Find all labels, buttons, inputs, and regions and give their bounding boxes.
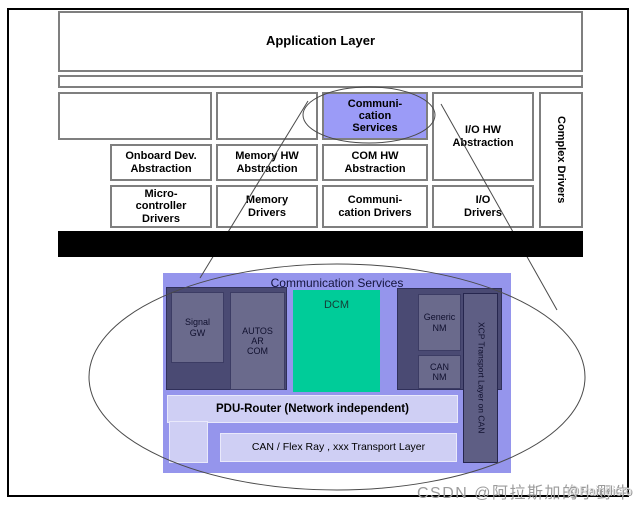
memory-drivers-label: Memory Drivers xyxy=(246,194,288,219)
memory-drivers-box: Memory Drivers xyxy=(216,185,318,228)
rte-bar xyxy=(58,75,583,88)
generic-nm-box: Generic NM xyxy=(418,294,461,351)
communication-services-highlight-box: Communi- cation Services xyxy=(322,92,428,140)
onboard-device-abstraction-label: Onboard Dev. Abstraction xyxy=(125,150,196,175)
xcp-transport-layer-box: XCP Transport Layer on CAN xyxy=(463,293,498,463)
com-hw-abstraction-label: COM HW Abstraction xyxy=(344,150,405,175)
complex-drivers-label: Complex Drivers xyxy=(555,116,567,203)
communication-drivers-label: Communi- cation Drivers xyxy=(338,194,411,219)
autosar-architecture-figure: Application Layer Communi- cation Servic… xyxy=(0,0,641,508)
pdu-router-label: PDU-Router (Network independent) xyxy=(216,403,409,416)
microcontroller-drivers-box: Micro- controller Drivers xyxy=(110,185,212,228)
can-nm-label: CAN NM xyxy=(430,362,449,382)
io-drivers-label: I/O Drivers xyxy=(464,194,502,219)
microcontroller-drivers-label: Micro- controller Drivers xyxy=(136,188,187,225)
can-nm-box: CAN NM xyxy=(418,355,461,389)
io-hw-abstraction-box: I/O HW Abstraction xyxy=(432,92,534,181)
communication-services-detail-panel: Communication Services Signal GW AUTOS A… xyxy=(163,273,511,473)
application-layer-box: Application Layer xyxy=(58,11,583,72)
pdu-router-bar: PDU-Router (Network independent) xyxy=(167,395,458,423)
onboard-device-abstraction-box: Onboard Dev. Abstraction xyxy=(110,144,212,181)
signal-gw-box: Signal GW xyxy=(171,292,224,363)
transport-layer-label: CAN / Flex Ray , xxx Transport Layer xyxy=(252,442,425,454)
memory-hw-abstraction-box: Memory HW Abstraction xyxy=(216,144,318,181)
io-hw-abstraction-label: I/O HW Abstraction xyxy=(452,124,513,149)
autosar-com-label: AUTOS AR COM xyxy=(242,326,273,356)
com-hw-abstraction-box: COM HW Abstraction xyxy=(322,144,428,181)
autosar-com-box: AUTOS AR COM xyxy=(230,292,285,390)
application-layer-label: Application Layer xyxy=(266,34,375,49)
xcp-transport-layer-label: XCP Transport Layer on CAN xyxy=(476,322,486,433)
complex-drivers-box: Complex Drivers xyxy=(539,92,583,228)
dcm-box: DCM xyxy=(293,290,380,392)
io-drivers-box: I/O Drivers xyxy=(432,185,534,228)
services-blank-box-middle xyxy=(216,92,318,140)
microcontroller-bar-label: Microcontroller (µC) xyxy=(263,237,377,250)
signal-gw-label: Signal GW xyxy=(185,317,210,337)
memory-hw-abstraction-label: Memory HW Abstraction xyxy=(235,150,299,175)
pdu-router-left-extension xyxy=(169,421,208,463)
services-blank-box-left xyxy=(58,92,212,140)
transport-layer-bar: CAN / Flex Ray , xxx Transport Layer xyxy=(220,433,457,462)
microcontroller-bar: Microcontroller (µC) xyxy=(58,231,583,257)
signal-gateway-group-panel: Signal GW AUTOS AR COM xyxy=(166,287,287,390)
generic-nm-label: Generic NM xyxy=(424,312,456,332)
secondary-watermark: @Raindicro xyxy=(567,484,633,498)
communication-services-label: Communi- cation Services xyxy=(348,98,402,135)
dcm-label: DCM xyxy=(324,299,349,311)
communication-drivers-box: Communi- cation Drivers xyxy=(322,185,428,228)
